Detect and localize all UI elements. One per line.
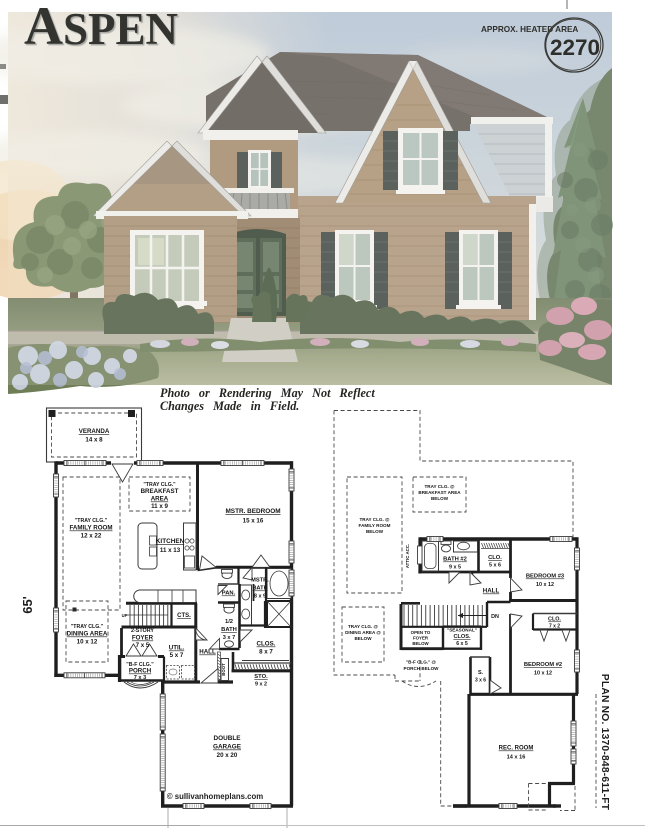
svg-text:7 x 3: 7 x 3 [134, 675, 146, 681]
svg-text:PORCH BELOW: PORCH BELOW [404, 666, 440, 671]
svg-text:FOYER: FOYER [132, 635, 154, 642]
svg-text:5 x 7: 5 x 7 [170, 652, 184, 659]
svg-text:14 x 16: 14 x 16 [507, 755, 526, 761]
svg-text:BELOW: BELOW [354, 636, 372, 641]
svg-text:PORCH: PORCH [129, 668, 152, 675]
svg-text:TRAY CLG. @: TRAY CLG. @ [348, 624, 379, 629]
svg-text:DOUBLE: DOUBLE [214, 735, 242, 742]
svg-text:BATH: BATH [221, 627, 237, 633]
svg-text:BEDROOM #3: BEDROOM #3 [526, 574, 565, 580]
svg-text:OPEN TO: OPEN TO [411, 630, 431, 635]
svg-text:PAN.: PAN. [222, 591, 236, 597]
svg-text:BELOW: BELOW [412, 641, 429, 646]
svg-text:2-STORY: 2-STORY [131, 628, 154, 634]
svg-text:GARAGE: GARAGE [213, 744, 242, 751]
svg-text:UTIL.: UTIL. [169, 645, 185, 652]
svg-text:9 x 5: 9 x 5 [449, 565, 461, 571]
svg-text:CLO.: CLO. [548, 617, 561, 623]
svg-text:BATH #2: BATH #2 [443, 557, 467, 563]
svg-text:"TRAY CLG.": "TRAY CLG." [75, 518, 108, 524]
svg-text:10 x 12: 10 x 12 [536, 582, 554, 588]
svg-text:6 x 5: 6 x 5 [456, 641, 468, 647]
svg-text:BREAKFAST AREA: BREAKFAST AREA [418, 490, 461, 495]
svg-text:10 x 12: 10 x 12 [534, 671, 552, 677]
svg-text:5 x 6: 5 x 6 [489, 563, 501, 569]
svg-text:ATTIC ACC.: ATTIC ACC. [405, 544, 410, 568]
svg-text:9 x 2: 9 x 2 [255, 682, 267, 688]
svg-text:HALL: HALL [199, 649, 216, 656]
svg-text:1/2: 1/2 [225, 619, 233, 625]
svg-text:CLOS.: CLOS. [453, 634, 471, 640]
svg-text:14 x 8: 14 x 8 [85, 437, 103, 444]
svg-text:STO.: STO. [254, 674, 268, 680]
svg-text:8 x 7: 8 x 7 [259, 649, 273, 656]
svg-text:"SEASONAL": "SEASONAL" [447, 628, 477, 633]
svg-text:FAMILY ROOM: FAMILY ROOM [359, 523, 391, 528]
svg-text:10 x 12: 10 x 12 [77, 639, 98, 646]
svg-text:FOYER: FOYER [413, 636, 429, 641]
svg-text:11 x 9: 11 x 9 [151, 503, 168, 510]
svg-text:CTS.: CTS. [177, 613, 191, 619]
svg-text:HALL: HALL [483, 588, 500, 595]
svg-text:11 x 13: 11 x 13 [160, 547, 181, 554]
svg-text:7 x 2: 7 x 2 [549, 624, 560, 630]
svg-text:DN: DN [491, 614, 499, 620]
svg-text:VERANDA: VERANDA [79, 428, 110, 435]
svg-text:3 x 6: 3 x 6 [475, 678, 486, 684]
svg-text:TRAY CLG. @: TRAY CLG. @ [424, 484, 455, 489]
svg-text:"B-F CLG." @: "B-F CLG." @ [406, 660, 437, 665]
svg-text:PLAN NO. 1370-848-611-FT: PLAN NO. 1370-848-611-FT [599, 674, 610, 811]
svg-text:3 x 7: 3 x 7 [223, 635, 235, 641]
svg-text:CLO.: CLO. [488, 555, 502, 561]
svg-text:FAMILY ROOM: FAMILY ROOM [70, 525, 113, 532]
svg-text:UP: UP [122, 613, 128, 618]
svg-text:TRAY CLG. @: TRAY CLG. @ [359, 517, 390, 522]
svg-text:7 x 5: 7 x 5 [136, 642, 150, 649]
svg-text:12 x 22: 12 x 22 [81, 533, 102, 540]
svg-text:"TRAY CLG.": "TRAY CLG." [71, 624, 104, 630]
svg-text:KITCHEN: KITCHEN [156, 538, 185, 545]
svg-text:BELOW: BELOW [366, 529, 384, 534]
svg-text:BOOT: BOOT [221, 663, 226, 676]
svg-text:BEDROOM #2: BEDROOM #2 [524, 662, 562, 668]
svg-text:MSTR. BEDROOM: MSTR. BEDROOM [225, 508, 280, 515]
svg-text:65': 65' [20, 596, 35, 614]
svg-text:S.: S. [478, 670, 484, 676]
svg-text:CLOS.: CLOS. [257, 641, 276, 648]
svg-text:BREAKFAST: BREAKFAST [141, 488, 179, 495]
svg-text:20 x 20: 20 x 20 [217, 752, 238, 759]
svg-text:REC. ROOM: REC. ROOM [499, 746, 534, 752]
svg-text:BELOW: BELOW [431, 496, 449, 501]
svg-text:DINING AREA: DINING AREA [67, 631, 108, 638]
svg-text:15 x 16: 15 x 16 [243, 518, 264, 525]
svg-text:DINING AREA @: DINING AREA @ [345, 630, 381, 635]
svg-text:© sullivanhomeplans.com: © sullivanhomeplans.com [167, 792, 263, 801]
svg-text:AREA: AREA [151, 496, 169, 503]
svg-text:8 x 9: 8 x 9 [254, 594, 266, 600]
